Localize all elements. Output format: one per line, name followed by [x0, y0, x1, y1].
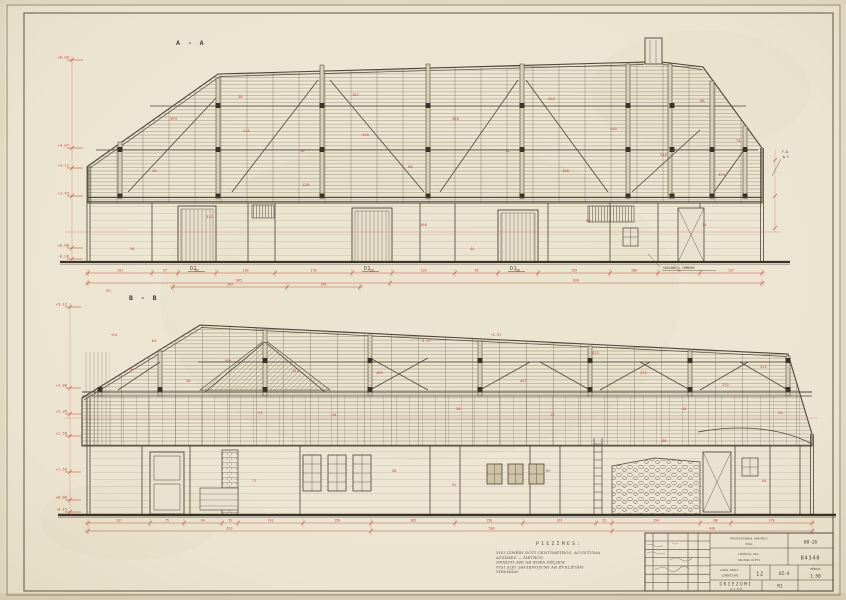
dim-annotation: 325 [718, 172, 725, 177]
elevation-mark: -0.15 [56, 507, 67, 512]
dim-annotation: 415 [243, 128, 250, 133]
dim-annotation: 41 [128, 366, 133, 371]
dim-annotation: 4.57 [422, 338, 431, 343]
dim-value: 137 [728, 268, 734, 272]
dim-value: 163 [227, 282, 233, 286]
dim-annotation: 28 [186, 378, 191, 383]
dim-annotation: 58 [392, 468, 397, 473]
dim-value: 161 [320, 282, 326, 286]
dim-value: 95 [474, 268, 478, 272]
dim-value: 185 [410, 518, 416, 522]
tall-windows [303, 455, 371, 491]
dim-value: 150 [486, 518, 492, 522]
dim-value: 440 [709, 526, 715, 530]
door-d1 [498, 210, 538, 262]
dim-annotation: 74 [702, 222, 707, 227]
small-window [623, 228, 638, 246]
elevation-mark: +2.58 [56, 431, 68, 436]
dim-annotation: 412 [592, 350, 599, 355]
dim-value: 75 [165, 518, 169, 522]
elevation-mark: ±0.00 [58, 243, 70, 248]
vent-window-left [252, 205, 274, 218]
fd-label: F.D. [782, 150, 790, 154]
dim-annotation: 405 [376, 370, 383, 375]
dim-annotation: 64 [152, 338, 157, 343]
dim-value: 84 [201, 518, 205, 522]
dim-annotation: 312 [640, 370, 647, 375]
dim-annotation: 91 [452, 482, 457, 487]
dim-value: 820 [573, 278, 579, 282]
door-label-d2-left: D2 [190, 266, 197, 272]
elevation-mark: +3.12 [58, 163, 69, 168]
dim-annotation: 28 [152, 168, 157, 173]
org-line-2: RĪGA [746, 541, 753, 546]
notes-line-5: VIRSMĀM. [496, 569, 520, 574]
section-a-title: A - A [176, 39, 206, 47]
dim-annotation: ~4.57 [490, 332, 501, 337]
dim-annotation: 58 [130, 246, 135, 251]
right-door [703, 452, 731, 512]
architectural-sheet: A - A [0, 0, 846, 600]
dim-annotation: 246 [660, 152, 668, 157]
dim-annotation: 44 [470, 246, 475, 251]
dim-value: 137 [116, 518, 122, 522]
dim-value: 161 [556, 518, 562, 522]
dim-value: 623 [226, 526, 232, 530]
dim-annotation: 28 [238, 94, 243, 99]
dim-value: 178 [768, 518, 774, 522]
elevation-mark: +1.50 [56, 467, 68, 472]
dim-annotation: 64 [762, 478, 767, 483]
small-grid-windows [487, 464, 544, 484]
gable-vertical-boarding [84, 352, 110, 445]
dim-value: 159 [571, 268, 577, 272]
dim-annotation: 412 [760, 364, 767, 369]
dim-annotation: 188 [420, 222, 428, 227]
scale-value: 1:50 [810, 574, 821, 580]
code-top: 88-26 [804, 540, 818, 546]
org-line-1: PROJEKTĒŠANAS KANTORIS [730, 536, 767, 541]
door-d2-right [352, 208, 392, 262]
scale-caption: MĒROGS [810, 566, 820, 571]
elevation-mark: +8.04 [58, 55, 70, 60]
dim-annotation: 292 [548, 96, 555, 101]
panel-door [150, 452, 184, 514]
dim-value: 530 [488, 526, 494, 530]
dim-annotation: 88 [662, 438, 667, 443]
trough [200, 488, 238, 510]
vent-window-right [588, 206, 634, 222]
dim-annotation: ~64 [110, 332, 118, 337]
dim-annotation: 312 [206, 214, 213, 219]
dim-annotation: 385 [452, 116, 459, 121]
dim-value: 194 [653, 518, 659, 522]
right-window [742, 458, 758, 476]
dim-annotation: 180 [224, 358, 232, 363]
elevation-mark: +5.12 [56, 302, 67, 307]
dim-value: 141 [117, 268, 123, 272]
dim-annotation: 28 [456, 406, 461, 411]
dim-annotation: 393 [170, 116, 177, 121]
dim-annotation: 44 [682, 406, 687, 411]
dim-annotation: 80 [408, 164, 413, 169]
object-line-2: KOLHOZA KLĒTS [738, 557, 760, 562]
notes-heading: PIEZĪMES: [536, 540, 583, 547]
fd-sub-label: № 2 [783, 155, 789, 159]
dim-value: 139 [420, 268, 426, 272]
sheet-number: 12 [756, 572, 764, 578]
elevation-mark: +4.07 [58, 143, 69, 148]
dim-annotation: 2% [106, 288, 111, 293]
door-label-d1: D1 [510, 266, 517, 272]
dim-value: 106 [631, 268, 637, 272]
rubble-stone-wall [612, 458, 700, 514]
dim-annotation: 312 [292, 368, 299, 373]
dim-value: 150 [334, 518, 340, 522]
dim-annotation: 77 [252, 478, 257, 483]
dim-annotation: 107 [352, 92, 359, 97]
elevation-mark: +3.36 [56, 409, 68, 414]
dim-annotation: 12 [550, 412, 555, 417]
wall-log-texture [92, 446, 810, 515]
dim-value: 68 [713, 518, 717, 522]
elevation-mark: +3.80 [56, 383, 68, 388]
elevation-mark: ±0.00 [56, 495, 68, 500]
dim-annotation: 68 [700, 98, 705, 103]
dim-annotation: 44 [332, 412, 337, 417]
dim-annotation: 96 [586, 218, 591, 223]
drawing-title-line-1: GRIEZUMI [720, 582, 753, 587]
chimney [645, 38, 662, 64]
drawing-title-line-2: A-A B-B [730, 587, 742, 591]
stamp-code: R1 [777, 584, 783, 590]
dim-value: 665 [236, 278, 242, 282]
dim-annotation: 232 [722, 382, 729, 387]
elevation-mark: -0.28 [58, 254, 70, 259]
code-main: B4340 [801, 556, 821, 562]
door-label-d2-right: D2 [364, 266, 371, 272]
dim-value: 35 [602, 518, 606, 522]
dim-value: 130 [242, 268, 248, 272]
dim-annotation: 120 [302, 182, 310, 187]
tambour-note: SAGLABĀTS TAMBURS [663, 265, 695, 270]
dim-annotation: 440 [610, 126, 618, 131]
stage-line-1: LAUKU ARHIT. [720, 568, 741, 572]
elevation-mark: +1.43 [58, 191, 69, 196]
object-line-1: LIEPĀJAS RAJ. [738, 551, 760, 556]
dim-annotation: 23 [258, 410, 263, 415]
stage-line-2: UZMĒRĪJUMS [722, 573, 739, 578]
dim-annotation: 415 [362, 132, 369, 137]
dim-annotation: 85 [546, 468, 551, 473]
dim-annotation: 78 [736, 138, 741, 143]
right-end-door [678, 208, 704, 262]
dim-value: 143 [267, 518, 273, 522]
dim-value: 170 [310, 268, 316, 272]
section-b-title: B - B [129, 294, 159, 302]
document-code: UZ-4 [779, 571, 790, 577]
stud-row [92, 396, 810, 445]
dim-annotation: 186 [562, 168, 570, 173]
dim-value: 57 [163, 268, 167, 272]
dim-annotation: 14 [505, 148, 510, 153]
dim-annotation: 457 [520, 378, 527, 383]
dim-annotation: 30 [300, 148, 305, 153]
dim-value: 35 [228, 518, 232, 522]
dim-annotation: 28 [778, 410, 783, 415]
